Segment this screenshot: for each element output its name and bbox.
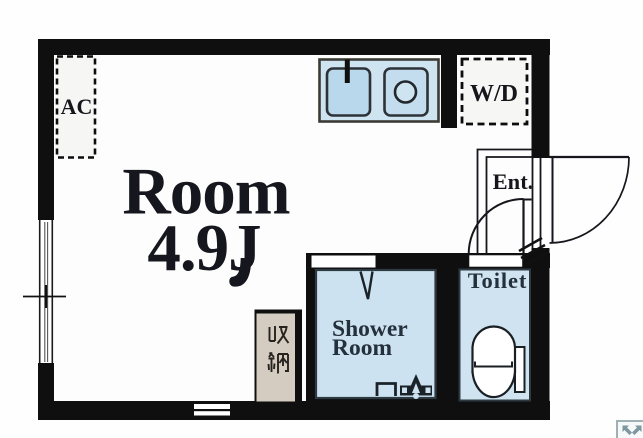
svg-text:W/D: W/D xyxy=(470,81,518,107)
svg-text:AC: AC xyxy=(61,94,93,119)
svg-text:Ent.: Ent. xyxy=(493,169,534,194)
svg-text:Toilet: Toilet xyxy=(468,268,528,293)
svg-text:Room: Room xyxy=(332,335,392,361)
